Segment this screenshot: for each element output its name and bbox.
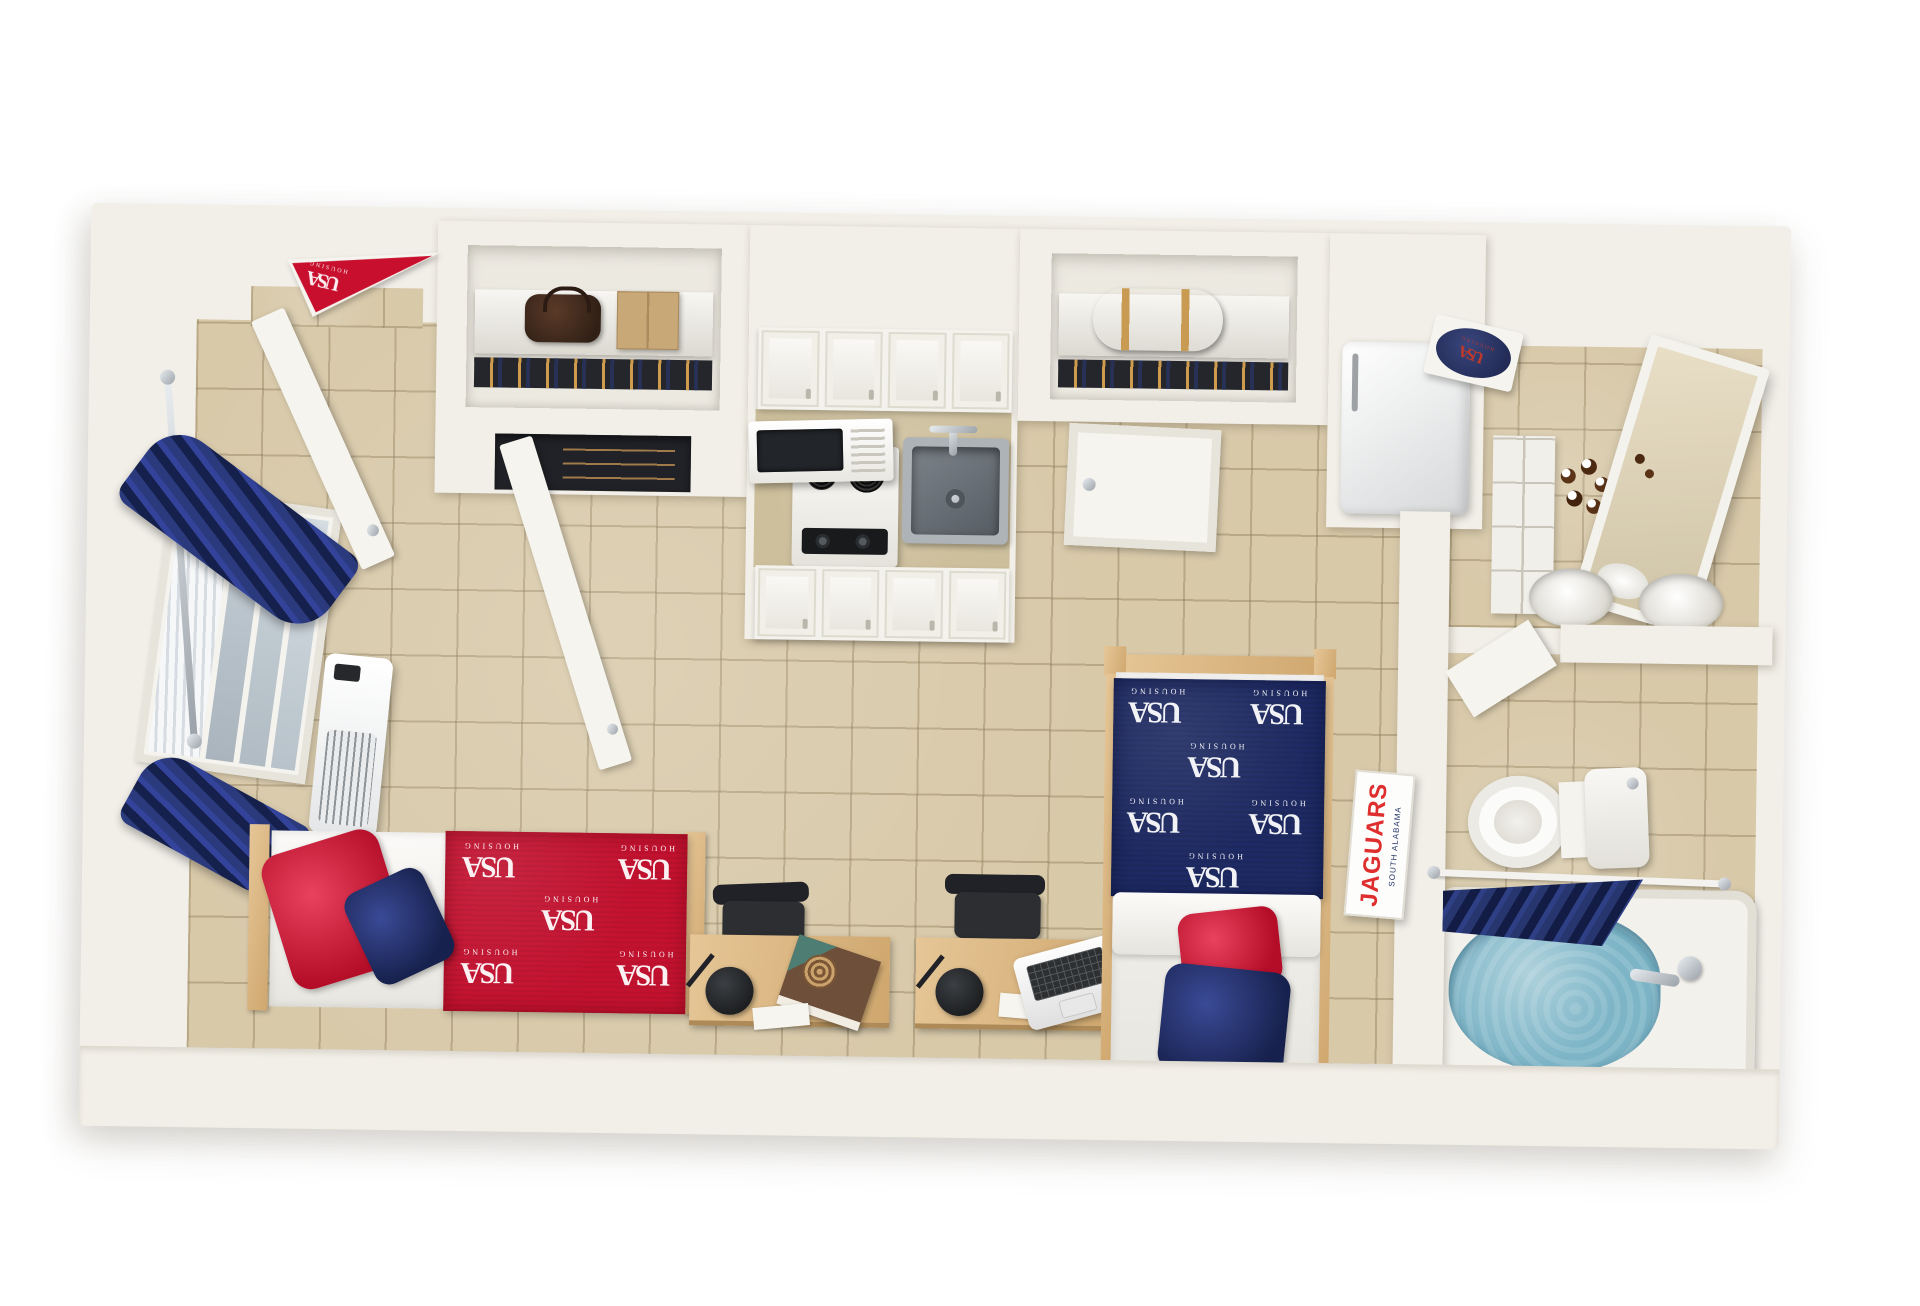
interior-door-closed [1064, 423, 1222, 552]
duffel-bag [1092, 288, 1223, 352]
bed-logo-monogram: USA [451, 851, 529, 882]
vanity-basin [1529, 568, 1614, 627]
dresser [562, 448, 675, 492]
toilet-bowl [1466, 774, 1569, 870]
range-knob [816, 534, 830, 548]
storage-box [616, 291, 679, 350]
sink-basin [911, 446, 1000, 535]
bed-logo-wordmark: HOUSING [450, 947, 528, 956]
laptop-trackpad [1058, 992, 1097, 1019]
cabinet-door [951, 333, 1010, 410]
toilet-flush-button [1626, 777, 1638, 789]
bed-logo-wordmark: HOUSING [1116, 796, 1194, 805]
ac-grille [318, 729, 377, 828]
tub-faucet-handle [1678, 956, 1702, 980]
desk-station-1 [689, 858, 891, 1023]
cabinet-door [824, 331, 883, 408]
bed-logo-monogram: USA [1117, 696, 1195, 727]
book-spiral-art [798, 950, 841, 993]
microwave-window [757, 429, 844, 473]
bathroom-top-wall [1560, 624, 1773, 665]
bed-logo-monogram: USA [1238, 808, 1316, 839]
bed-logo-monogram: USA [450, 957, 528, 988]
entry-door-knob [365, 522, 381, 538]
laptop-keyboard [1026, 946, 1111, 1001]
bed-logo-monogram: USA [606, 959, 684, 990]
bottle [1581, 459, 1597, 475]
closet-right-interior [1050, 253, 1298, 402]
cabinet-door [884, 570, 942, 639]
cabinet-door [948, 571, 1006, 640]
range-control-panel [802, 528, 888, 555]
bed-logo-wordmark: HOUSING [1238, 798, 1316, 807]
bed-logo-monogram: USA [530, 904, 608, 935]
closet-left-interior [466, 245, 722, 411]
cabinet-door [821, 569, 879, 638]
mirror-reflection-bottle [1644, 468, 1655, 479]
bed-logo-wordmark: HOUSING [1240, 688, 1318, 697]
headboard [247, 824, 270, 1010]
bed-logo-monogram: USA [607, 853, 685, 884]
toilet-seat-center [1493, 799, 1543, 845]
vanity-basin [1639, 573, 1724, 632]
cabinet-door [757, 568, 815, 637]
closet-right-hanging-clothes [1058, 359, 1288, 390]
closet-left-hanging-clothes [474, 357, 712, 390]
sink-faucet-bar [929, 426, 977, 434]
sink-drain [945, 489, 965, 509]
bed-logo-wordmark: HOUSING [531, 894, 609, 903]
bed-logo-monogram: USA [1176, 751, 1254, 782]
microwave-keypad [851, 428, 886, 473]
bed-logo-monogram: USA [1239, 698, 1317, 729]
bed-red: USAHOUSING USAHOUSING USAHOUSING USAHOUS… [247, 822, 710, 1020]
range-knob [856, 535, 870, 549]
mirror-reflection-bottle [1634, 453, 1646, 465]
cabinet-door [888, 332, 947, 409]
closet-door-knob [606, 722, 620, 736]
microwave [748, 419, 893, 484]
jaguars-banner: JAGUARS SOUTH ALABAMA [1344, 770, 1416, 921]
floorplan-render: USA HOUSING [0, 0, 1920, 1306]
handbag [525, 294, 602, 343]
interior-door-knob [1082, 478, 1096, 492]
chair-seat [954, 892, 1041, 939]
bed-logo-wordmark: HOUSING [1118, 686, 1196, 695]
bottle [1561, 468, 1576, 483]
jaguars-title: JAGUARS [1355, 781, 1393, 907]
bed-logo-monogram: USA [1116, 806, 1194, 837]
bed-logo-wordmark: HOUSING [607, 843, 685, 852]
toilet-tank [1584, 767, 1650, 869]
comforter-navy: USAHOUSING USAHOUSING USAHOUSING USAHOUS… [1111, 678, 1326, 899]
cabinet-door [761, 330, 820, 407]
refrigerator-handle [1352, 353, 1359, 411]
bottle [1566, 490, 1582, 506]
ac-vent-inlet [333, 663, 360, 682]
lower-cabinets [754, 565, 1009, 643]
apartment: USA HOUSING [0, 0, 1920, 1306]
bed-logo-wordmark: HOUSING [606, 949, 684, 958]
desk-station-2 [915, 851, 1119, 1026]
bed-logo-monogram: USA [1175, 861, 1253, 892]
bed-logo-wordmark: HOUSING [1177, 741, 1255, 750]
toilet [1466, 757, 1650, 884]
usa-pennant: USA HOUSING [287, 251, 440, 319]
comforter-red: USAHOUSING USAHOUSING USAHOUSING USAHOUS… [443, 831, 687, 1014]
kitchen-sink [902, 437, 1009, 544]
upper-cabinets [758, 327, 1013, 413]
bed-logo-wordmark: HOUSING [451, 841, 529, 850]
bed-logo-wordmark: HOUSING [1175, 851, 1253, 860]
bed-navy: USAHOUSING USAHOUSING USAHOUSING USAHOUS… [1098, 646, 1336, 1089]
